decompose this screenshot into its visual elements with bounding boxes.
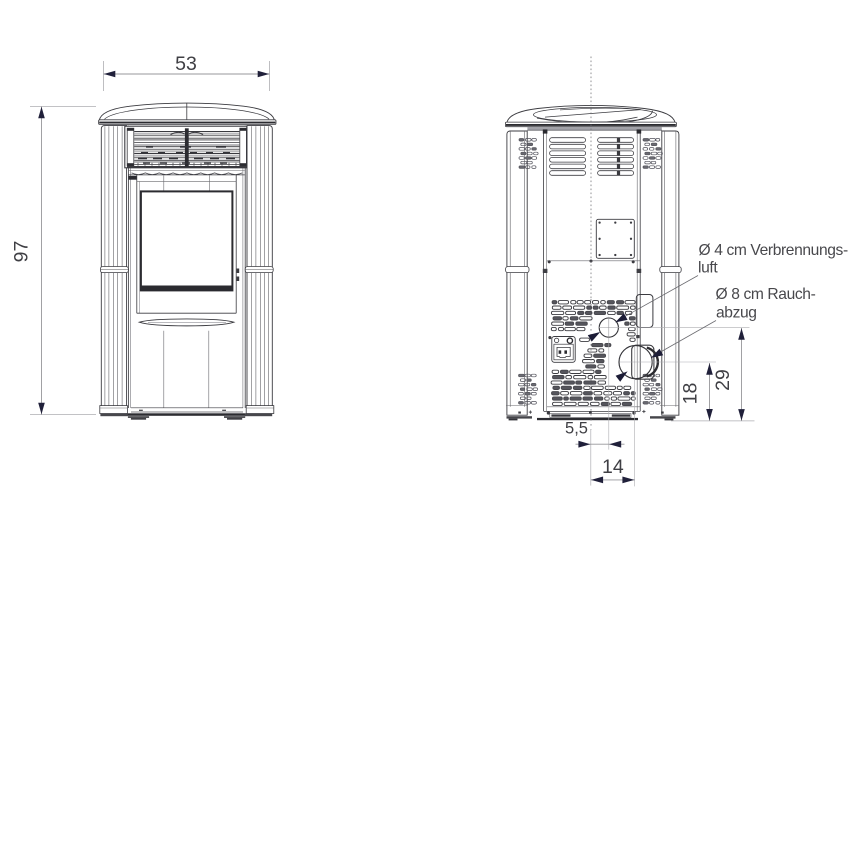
- svg-text:luft: luft: [698, 260, 718, 277]
- svg-text:29: 29: [712, 369, 734, 391]
- svg-text:97: 97: [11, 241, 33, 263]
- svg-text:abzug: abzug: [716, 305, 757, 322]
- svg-text:14: 14: [602, 456, 624, 478]
- svg-text:5,5: 5,5: [565, 420, 588, 438]
- svg-text:18: 18: [680, 383, 702, 405]
- svg-text:Ø 8 cm Rauch-: Ø 8 cm Rauch-: [716, 286, 816, 303]
- svg-text:Ø 4 cm Verbrennungs-: Ø 4 cm Verbrennungs-: [699, 242, 848, 259]
- svg-text:53: 53: [175, 53, 197, 75]
